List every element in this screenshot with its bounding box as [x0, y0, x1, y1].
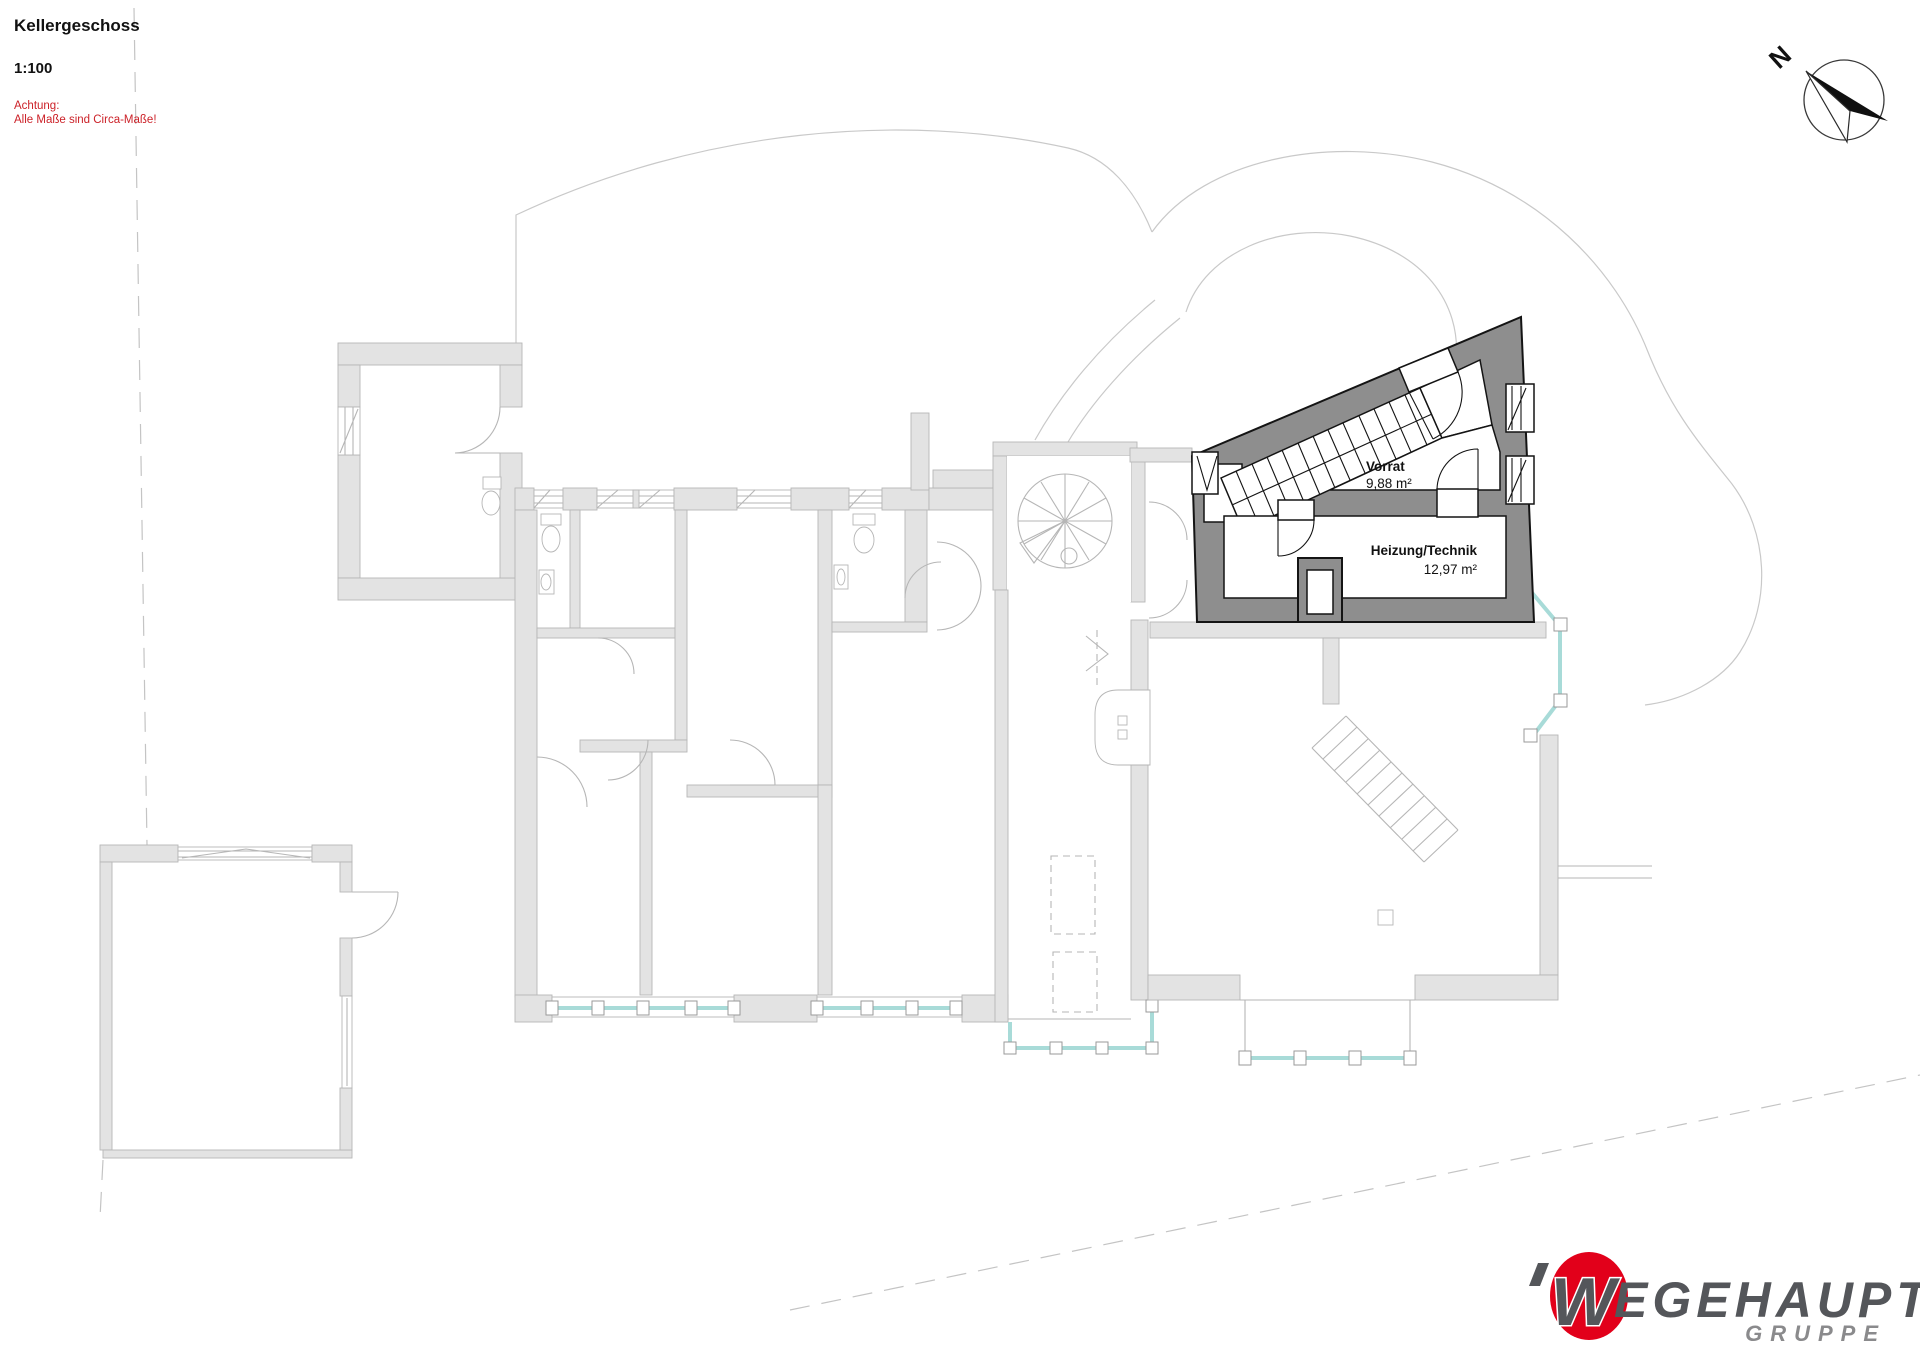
- warning-line-2: Alle Maße sind Circa-Maße!: [14, 113, 157, 127]
- window-right-upper: [1506, 384, 1534, 432]
- wegehaupt-logo: W EGEHAUPT GRUPPE: [1529, 1252, 1920, 1346]
- room-label-vorrat: Vorrat: [1366, 459, 1405, 474]
- room-area-vorrat: 9,88 m²: [1366, 476, 1412, 491]
- logo-initial: W: [1551, 1264, 1621, 1340]
- window-right-lower: [1506, 456, 1534, 504]
- annex-toilet: [482, 477, 501, 515]
- terrace-glazing: [1004, 1000, 1158, 1054]
- plan-scale: 1:100: [14, 60, 157, 77]
- terrain-contours: [516, 130, 1762, 705]
- floor-plan-canvas: Vorrat 9,88 m² Heizung/Technik 12,97 m² …: [0, 0, 1920, 1358]
- bathroom2-sink: [834, 565, 848, 589]
- garden-wall-stub: [1558, 866, 1652, 878]
- highlighted-basement-section: [1192, 317, 1534, 622]
- basement-window-band-right: [811, 997, 962, 1017]
- logo-subtitle: GRUPPE: [1745, 1321, 1886, 1346]
- window-left: [1192, 452, 1218, 494]
- title-block: Kellergeschoss 1:100 Achtung: Alle Maße …: [14, 16, 157, 127]
- annex-door: [455, 407, 500, 453]
- chimney-niche: [1298, 558, 1342, 622]
- spiral-stair-tower: [993, 442, 1145, 602]
- corridor-strip: [995, 590, 1158, 1054]
- main-basement-block: [515, 413, 1008, 1022]
- plan-title: Kellergeschoss: [14, 16, 157, 36]
- warning-note: Achtung: Alle Maße sind Circa-Maße!: [14, 99, 157, 127]
- great-room: [1148, 580, 1652, 1065]
- floor-opening-dashed: [1051, 856, 1095, 934]
- column-marker: [1378, 910, 1393, 925]
- flue-vent-arrow: [1086, 630, 1108, 686]
- bay-window-glazing: [1239, 1051, 1416, 1065]
- room-area-heizung: 12,97 m²: [1424, 562, 1478, 577]
- bathroom-sink: [539, 570, 554, 594]
- logo-wordmark: EGEHAUPT: [1614, 1272, 1920, 1328]
- north-label: N: [1763, 40, 1797, 75]
- garage-door: [352, 892, 398, 938]
- garage: [100, 845, 398, 1158]
- logo-dash-mark: [1529, 1263, 1549, 1286]
- basement-window-band-left: [546, 997, 740, 1017]
- floor-plan-page: Kellergeschoss 1:100 Achtung: Alle Maße …: [0, 0, 1920, 1358]
- furnace: [1095, 690, 1150, 765]
- exterior-stair-diagonal: [1312, 716, 1458, 862]
- spiral-staircase: [1018, 474, 1112, 568]
- bathroom2-toilet: [853, 514, 875, 553]
- bathroom-toilet: [541, 514, 561, 552]
- room-label-heizung: Heizung/Technik: [1371, 543, 1478, 558]
- floor-opening-dashed-2: [1053, 952, 1097, 1012]
- annex-room: [338, 343, 522, 600]
- north-compass: N: [1763, 40, 1888, 142]
- warning-line-1: Achtung:: [14, 99, 157, 113]
